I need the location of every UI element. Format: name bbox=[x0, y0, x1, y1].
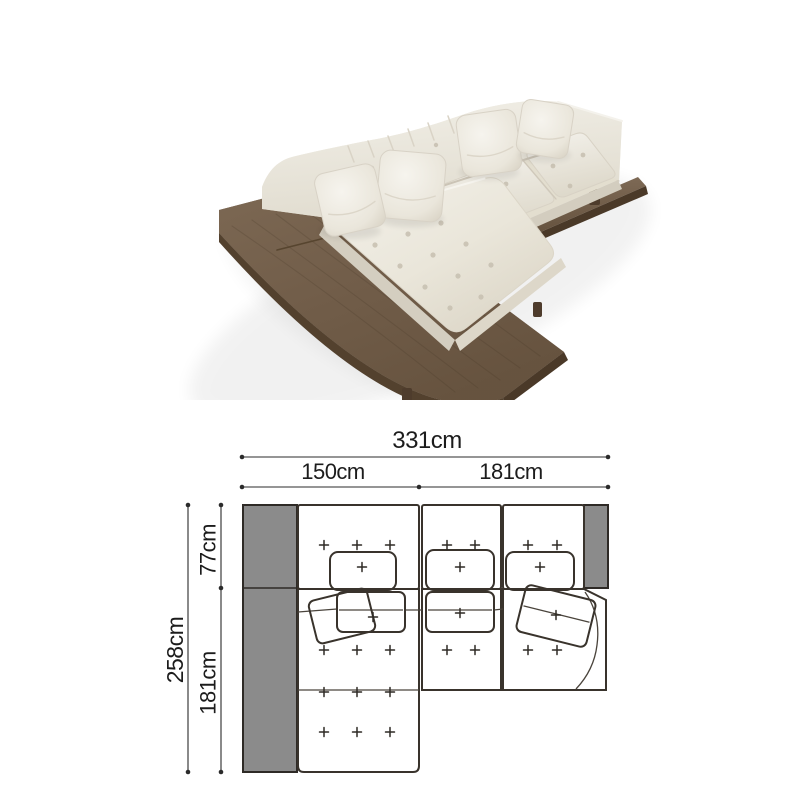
total-width-label: 331cm bbox=[392, 427, 462, 454]
back-cushions bbox=[330, 550, 574, 590]
dimension-diagram: 331cm 150cm 181cm 258cm 77cm 181cm bbox=[0, 400, 800, 800]
left-section-width-label: 150cm bbox=[301, 459, 365, 484]
depth-dimensions: 258cm 77cm 181cm bbox=[162, 503, 223, 775]
right-section-width-label: 181cm bbox=[479, 459, 543, 484]
sofa-render bbox=[0, 0, 800, 400]
platform-plan-bar bbox=[243, 505, 297, 772]
dimension-diagram-figure: 331cm 150cm 181cm 258cm 77cm 181cm bbox=[0, 400, 800, 800]
throw-pillow bbox=[375, 149, 447, 222]
back-depth-label: 77cm bbox=[196, 524, 221, 576]
product-render-figure bbox=[0, 0, 800, 400]
arm-plan-bar bbox=[584, 505, 608, 588]
throw-pillow bbox=[455, 108, 523, 178]
loose-cushions bbox=[308, 584, 597, 648]
throw-pillow bbox=[515, 98, 575, 159]
tufting-marks bbox=[320, 541, 562, 737]
total-depth-label: 258cm bbox=[162, 617, 188, 684]
width-dimensions: 331cm 150cm 181cm bbox=[240, 427, 611, 489]
sofa-product-image: 331cm 150cm 181cm 258cm 77cm 181cm bbox=[0, 0, 800, 800]
sofa-plan bbox=[243, 505, 608, 772]
chaise-depth-label: 181cm bbox=[196, 651, 221, 715]
